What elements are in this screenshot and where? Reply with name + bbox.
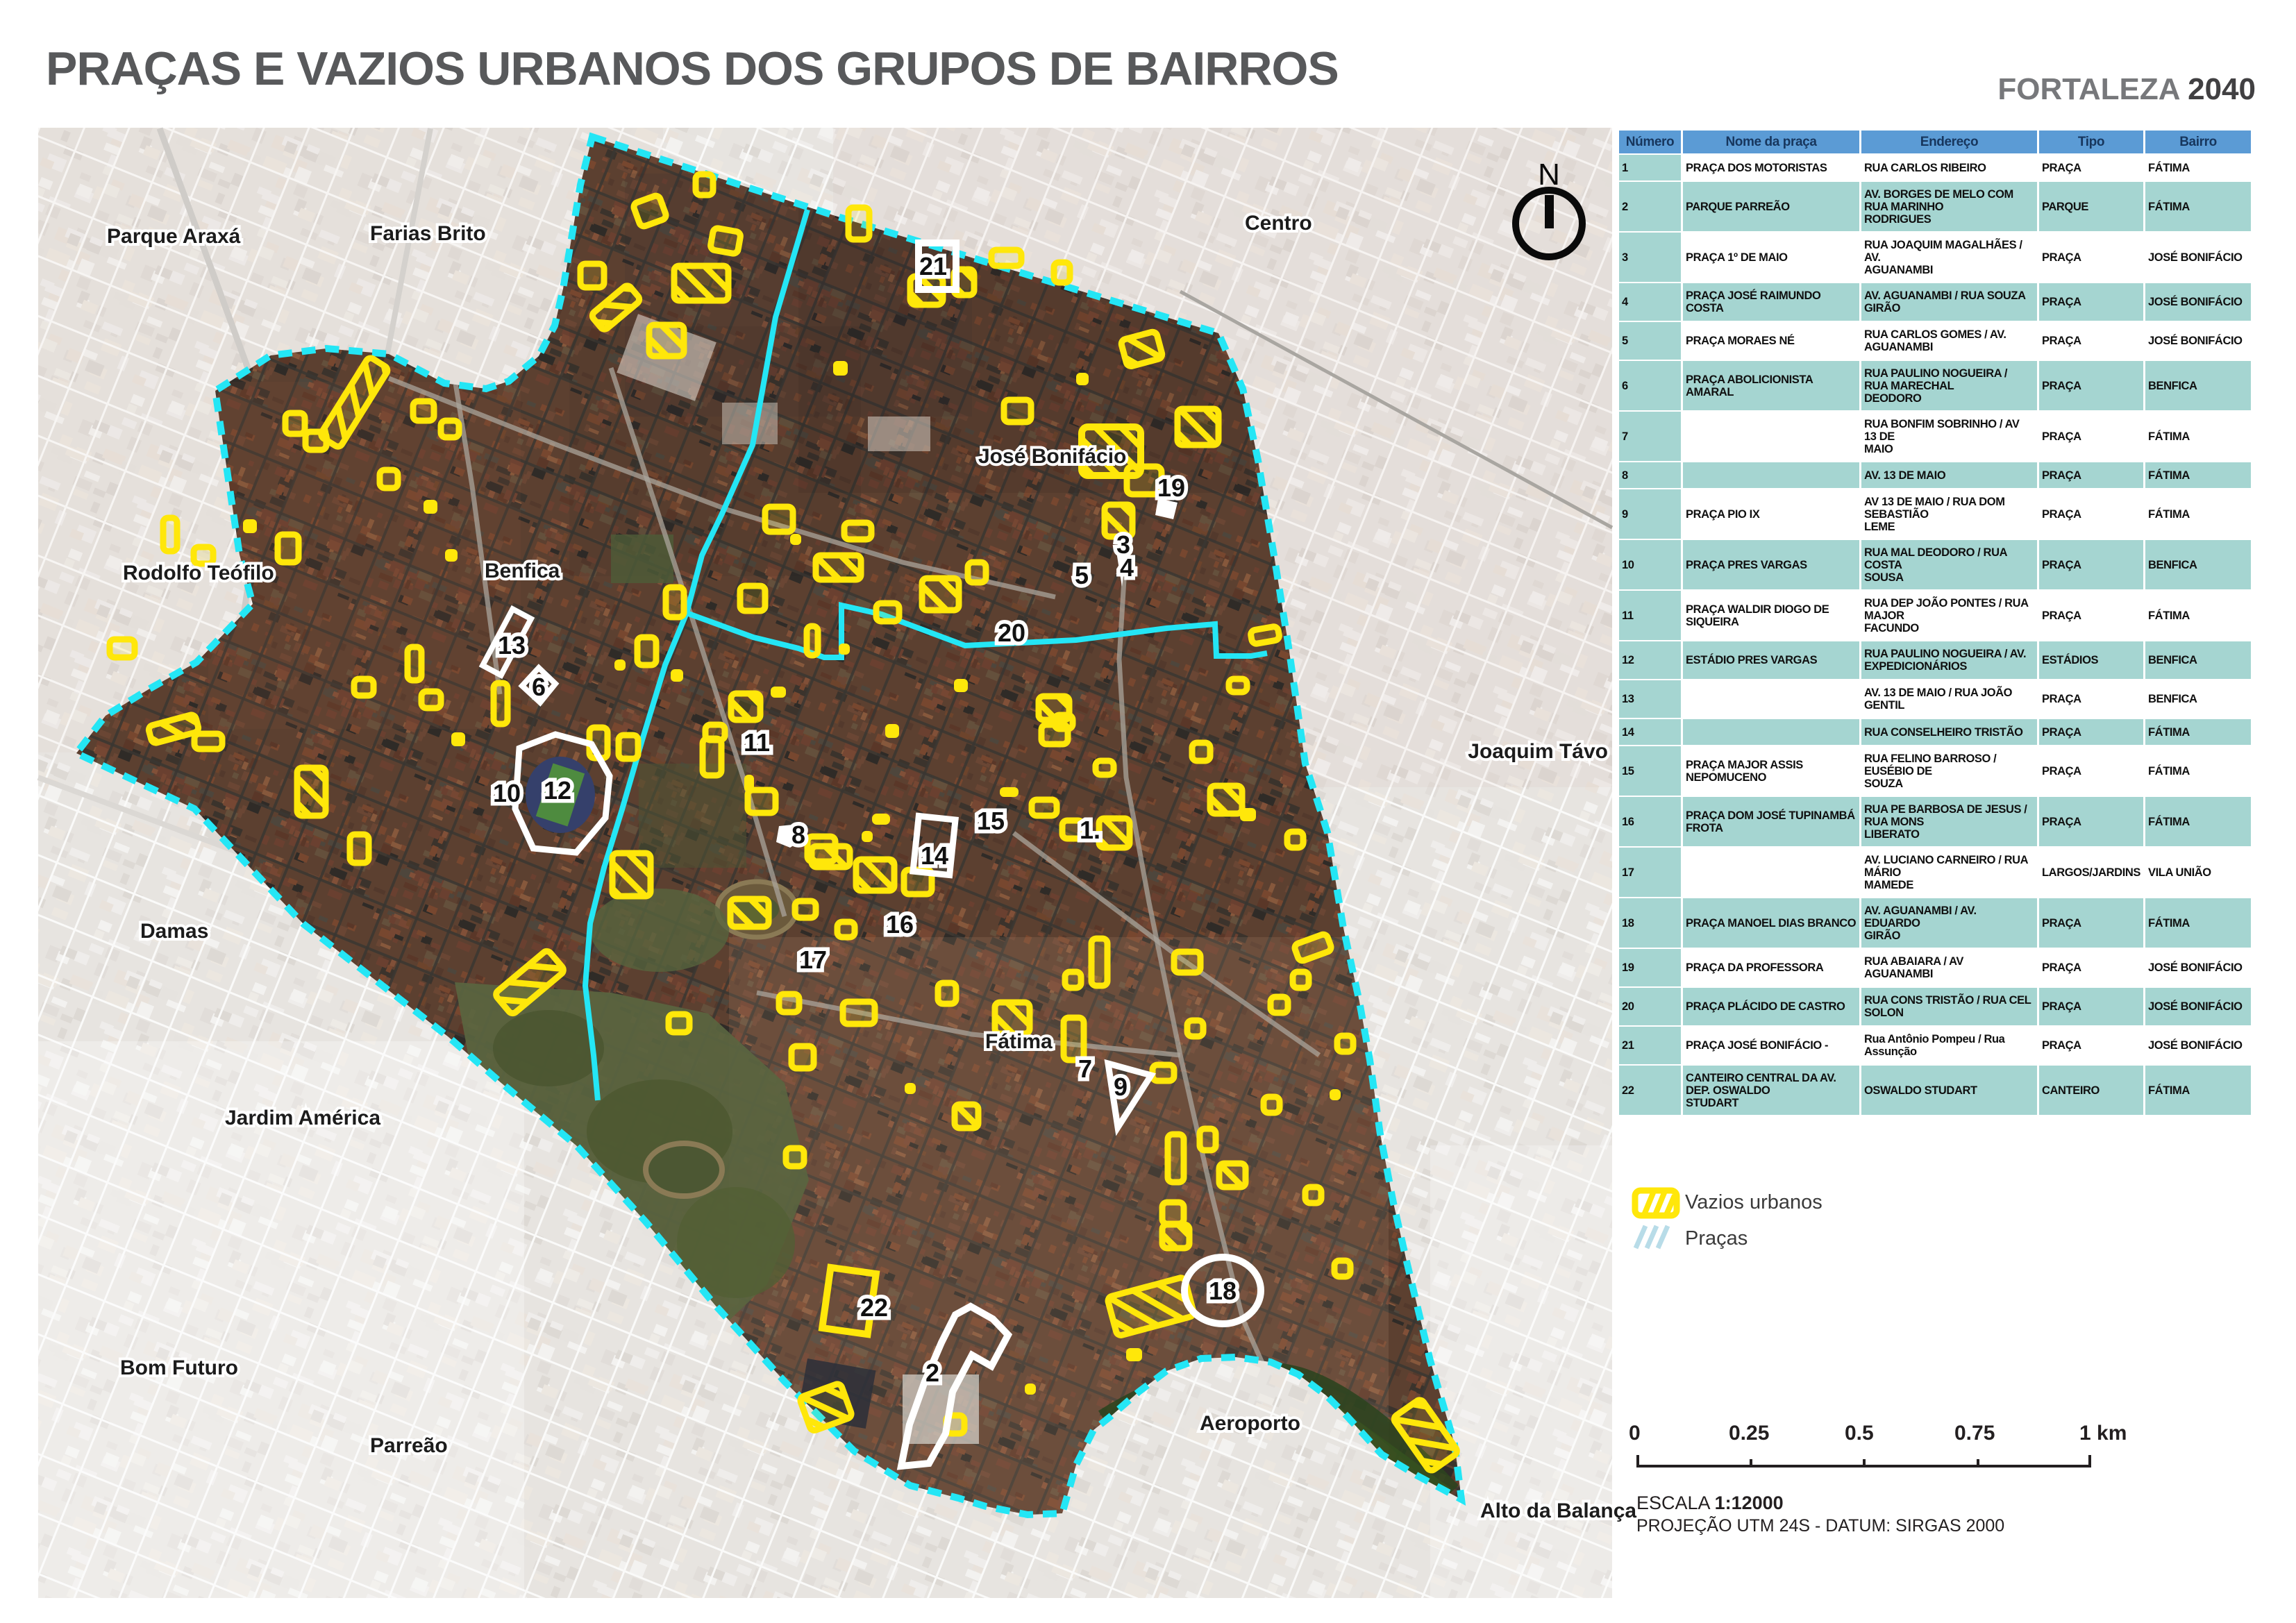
svg-text:16: 16	[886, 910, 914, 939]
svg-text:7: 7	[1078, 1054, 1092, 1083]
svg-text:Parque Araxá: Parque Araxá	[107, 225, 241, 248]
svg-text:1.: 1.	[1080, 816, 1100, 844]
svg-text:Aeroporto: Aeroporto	[1200, 1412, 1300, 1435]
svg-text:19: 19	[1157, 473, 1185, 502]
svg-text:11: 11	[744, 728, 770, 757]
svg-text:Fátima: Fátima	[985, 1030, 1053, 1053]
svg-text:4: 4	[1120, 553, 1134, 582]
svg-text:18: 18	[1209, 1277, 1237, 1305]
svg-text:Damas: Damas	[140, 920, 208, 943]
svg-text:2: 2	[925, 1359, 939, 1387]
svg-text:17: 17	[799, 945, 827, 974]
svg-text:9: 9	[1114, 1073, 1128, 1101]
svg-text:12: 12	[544, 776, 571, 805]
svg-text:Parreão: Parreão	[370, 1434, 448, 1457]
svg-text:Bom Futuro: Bom Futuro	[120, 1356, 238, 1379]
svg-text:20: 20	[998, 619, 1025, 647]
svg-text:6: 6	[532, 673, 546, 701]
svg-text:22: 22	[860, 1293, 888, 1322]
svg-text:5: 5	[1075, 561, 1089, 589]
svg-text:8: 8	[791, 821, 805, 849]
svg-text:10: 10	[493, 779, 521, 807]
svg-text:N: N	[1538, 158, 1560, 192]
svg-text:Benfica: Benfica	[485, 560, 560, 582]
svg-text:Alto da Balança: Alto da Balança	[1480, 1499, 1636, 1522]
svg-text:Jardim América: Jardim América	[225, 1107, 380, 1129]
svg-text:Rodolfo Teófilo: Rodolfo Teófilo	[123, 562, 274, 585]
svg-text:15: 15	[977, 807, 1005, 835]
svg-text:José Bonifácio: José Bonifácio	[978, 445, 1126, 468]
svg-text:Joaquim Távo: Joaquim Távo	[1468, 740, 1608, 763]
svg-text:Farias Brito: Farias Brito	[370, 222, 486, 245]
svg-text:13: 13	[498, 631, 526, 659]
svg-text:Centro: Centro	[1245, 212, 1312, 235]
svg-text:14: 14	[921, 841, 948, 870]
svg-text:21: 21	[919, 252, 947, 280]
